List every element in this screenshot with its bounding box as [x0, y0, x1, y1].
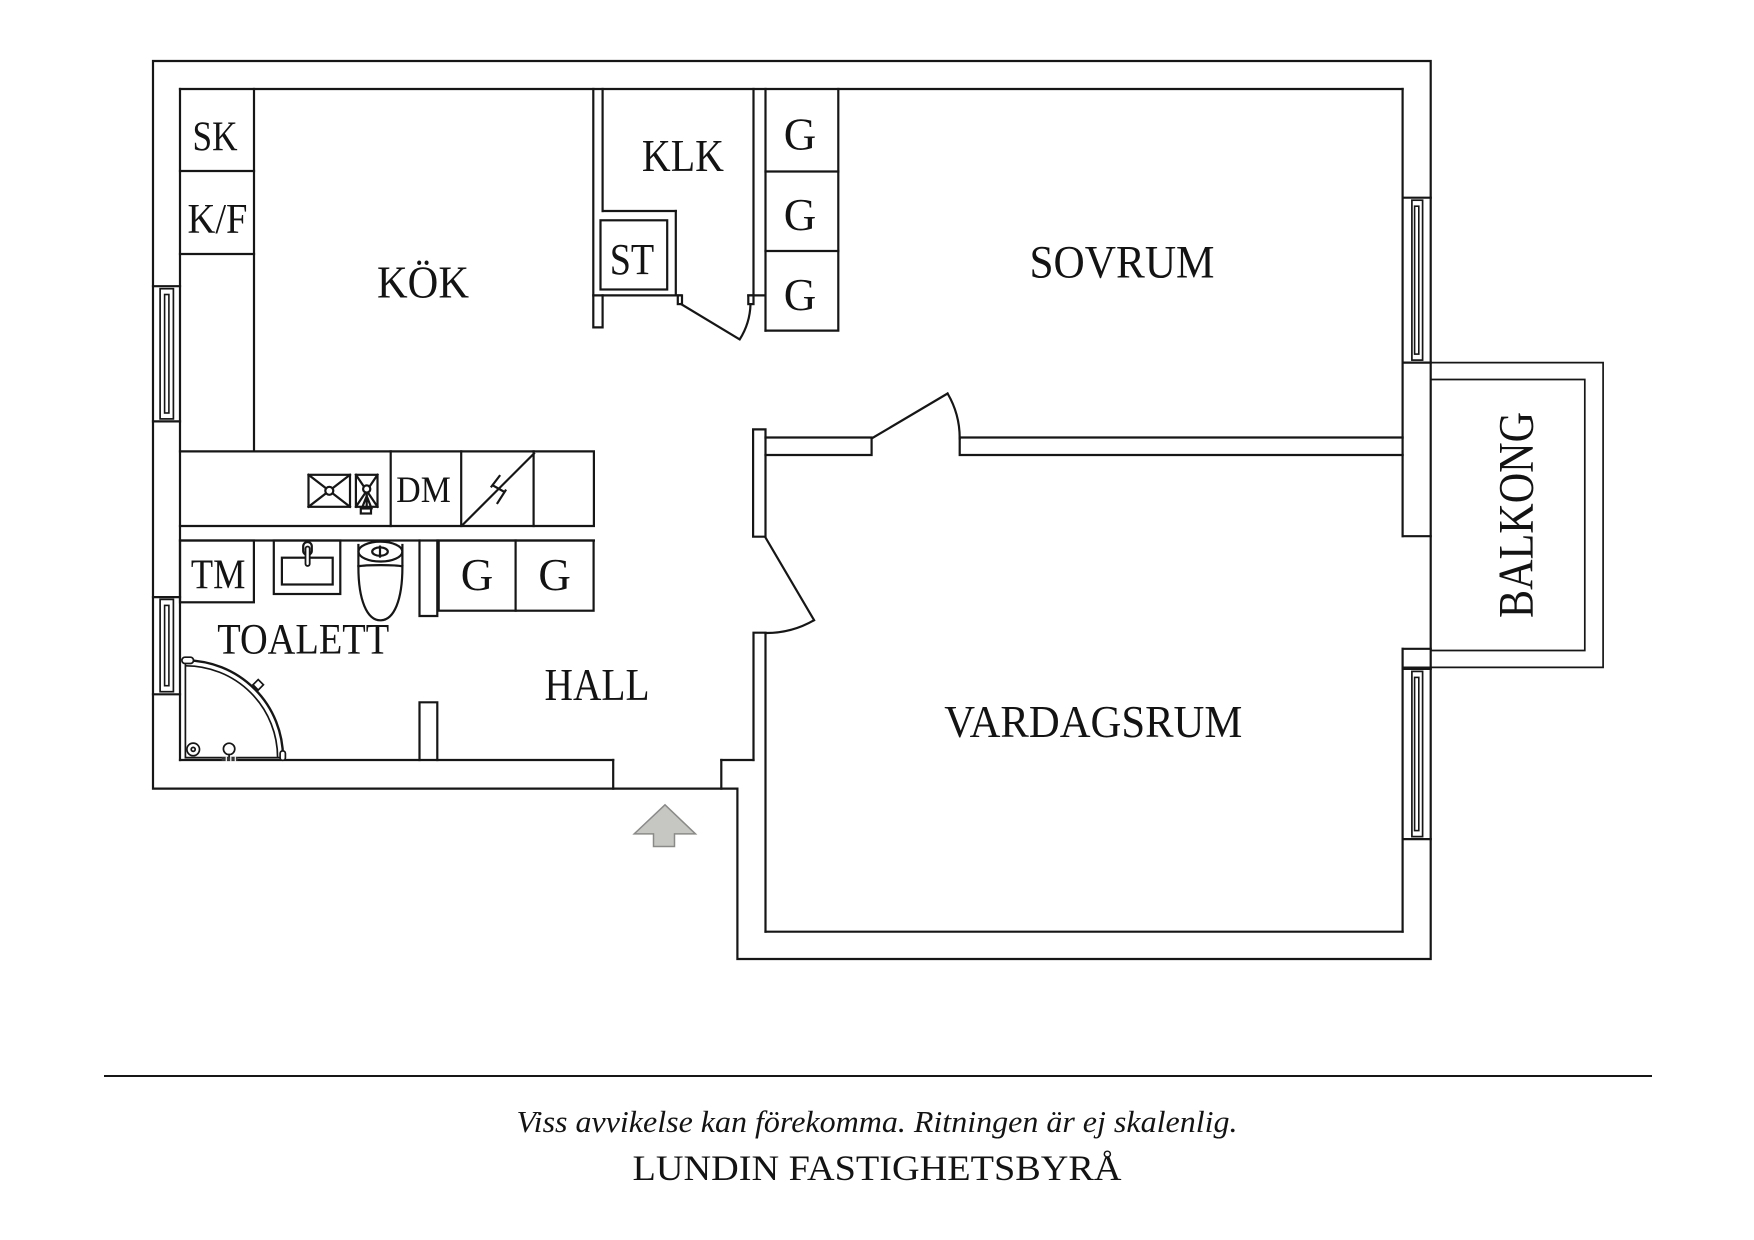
svg-text:Viss avvikelse kan förekomma.: Viss avvikelse kan förekomma. Ritningen … [517, 1104, 1238, 1139]
svg-text:ST: ST [610, 235, 655, 284]
svg-text:BALKONG: BALKONG [1488, 412, 1544, 618]
svg-text:TM: TM [191, 553, 246, 599]
svg-text:HALL: HALL [545, 659, 650, 710]
svg-text:DM: DM [396, 470, 451, 511]
svg-text:KLK: KLK [642, 130, 724, 181]
svg-text:G: G [461, 550, 494, 600]
svg-text:LUNDIN FASTIGHETSBYRÅ: LUNDIN FASTIGHETSBYRÅ [633, 1148, 1122, 1188]
svg-text:TOALETT: TOALETT [217, 617, 389, 664]
svg-text:KÖK: KÖK [377, 257, 469, 308]
svg-text:SOVRUM: SOVRUM [1030, 237, 1215, 289]
svg-text:G: G [784, 110, 817, 160]
svg-text:VARDAGSRUM: VARDAGSRUM [944, 696, 1242, 747]
svg-text:G: G [784, 190, 817, 240]
svg-text:SK: SK [193, 115, 238, 161]
svg-text:G: G [538, 550, 571, 600]
svg-text:G: G [784, 270, 817, 320]
svg-text:K/F: K/F [188, 197, 248, 243]
